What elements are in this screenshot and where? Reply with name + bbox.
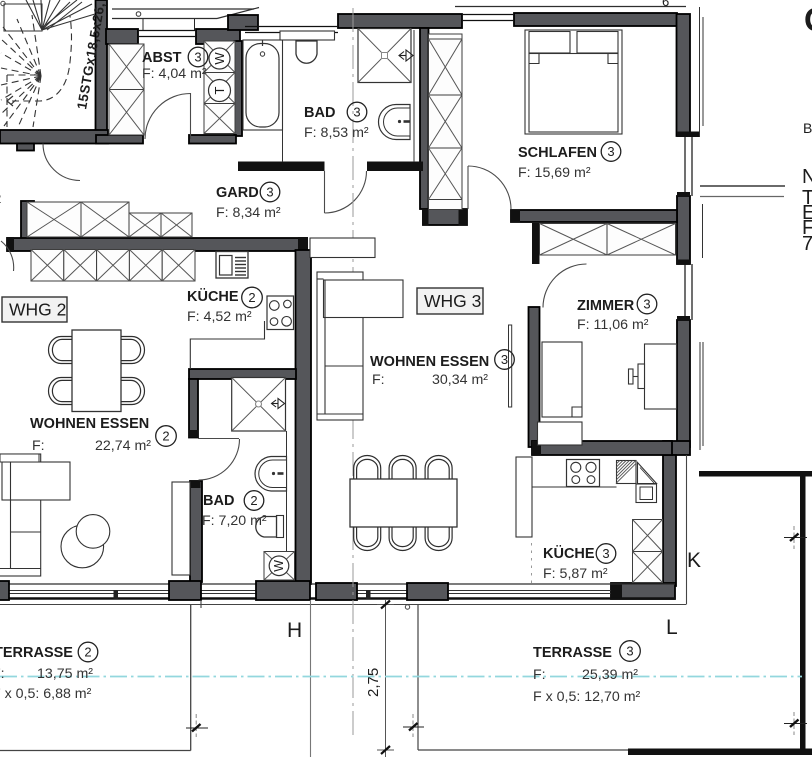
svg-text:BAD: BAD [304,105,335,121]
svg-text:25,39 m²: 25,39 m² [582,667,638,683]
svg-text:3: 3 [266,185,273,200]
svg-text:3: 3 [626,644,633,659]
svg-text:F: 5,87 m²: F: 5,87 m² [543,566,608,582]
svg-text:GARD: GARD [216,185,259,201]
svg-text:KÜCHE: KÜCHE [187,288,239,305]
svg-text:2: 2 [0,191,1,206]
svg-text:B: B [803,120,812,136]
svg-text:2: 2 [162,429,169,444]
svg-text:7: 7 [802,233,812,255]
svg-text:SCHLAFEN: SCHLAFEN [518,145,597,161]
svg-text:30,34 m²: 30,34 m² [432,372,488,388]
svg-text:H: H [287,619,302,642]
svg-text:WOHNEN ESSEN: WOHNEN ESSEN [370,354,489,370]
svg-text:F: 4,04 m²: F: 4,04 m² [142,66,207,82]
svg-text:F:: F: [372,372,385,388]
svg-text:3: 3 [607,144,614,159]
svg-text:WHG 3: WHG 3 [424,291,481,311]
svg-text:F: 8,53 m²: F: 8,53 m² [304,125,369,141]
svg-text:F: 4,52 m²: F: 4,52 m² [187,309,252,325]
svg-text:F: 7,20 m²: F: 7,20 m² [202,513,267,529]
svg-text:N: N [802,166,812,188]
svg-text:WOHNEN ESSEN: WOHNEN ESSEN [30,416,149,432]
svg-text:F:: F: [0,666,5,682]
svg-text:O: O [804,1,812,38]
svg-text:L: L [666,616,678,639]
svg-text:2: 2 [250,493,257,508]
svg-text:3: 3 [643,297,650,312]
svg-text:3: 3 [353,105,360,120]
svg-text:F x 0,5: 12,70 m²: F x 0,5: 12,70 m² [533,689,641,705]
svg-text:WHG 2: WHG 2 [9,300,66,320]
svg-text:2: 2 [248,290,255,305]
svg-text:F: 11,06 m²: F: 11,06 m² [577,317,649,333]
svg-text:F x 0,5: 6,88 m²: F x 0,5: 6,88 m² [0,686,92,702]
svg-text:KÜCHE: KÜCHE [543,545,595,562]
svg-text:K: K [687,549,701,572]
svg-text:F:: F: [32,438,45,454]
svg-text:ZIMMER: ZIMMER [577,298,635,314]
svg-text:W: W [212,52,227,65]
svg-text:2: 2 [84,645,91,660]
svg-text:3: 3 [194,50,201,65]
svg-text:BAD: BAD [203,493,234,509]
svg-text:2,75: 2,75 [365,668,382,697]
svg-text:T: T [212,86,227,94]
svg-text:W: W [272,560,286,572]
svg-text:6: 6 [662,0,669,9]
svg-text:3: 3 [501,352,508,367]
svg-text:F: 15,69 m²: F: 15,69 m² [518,165,591,181]
svg-text:13,75 m²: 13,75 m² [37,666,93,682]
svg-text:TERRASSE: TERRASSE [533,645,612,661]
svg-text:3: 3 [602,546,609,561]
svg-text:ABST: ABST [142,50,182,66]
svg-text:22,74 m²: 22,74 m² [95,438,151,454]
svg-text:TERRASSE: TERRASSE [0,645,73,661]
svg-text:F:: F: [533,667,546,683]
svg-text:F: 8,34 m²: F: 8,34 m² [216,205,281,221]
